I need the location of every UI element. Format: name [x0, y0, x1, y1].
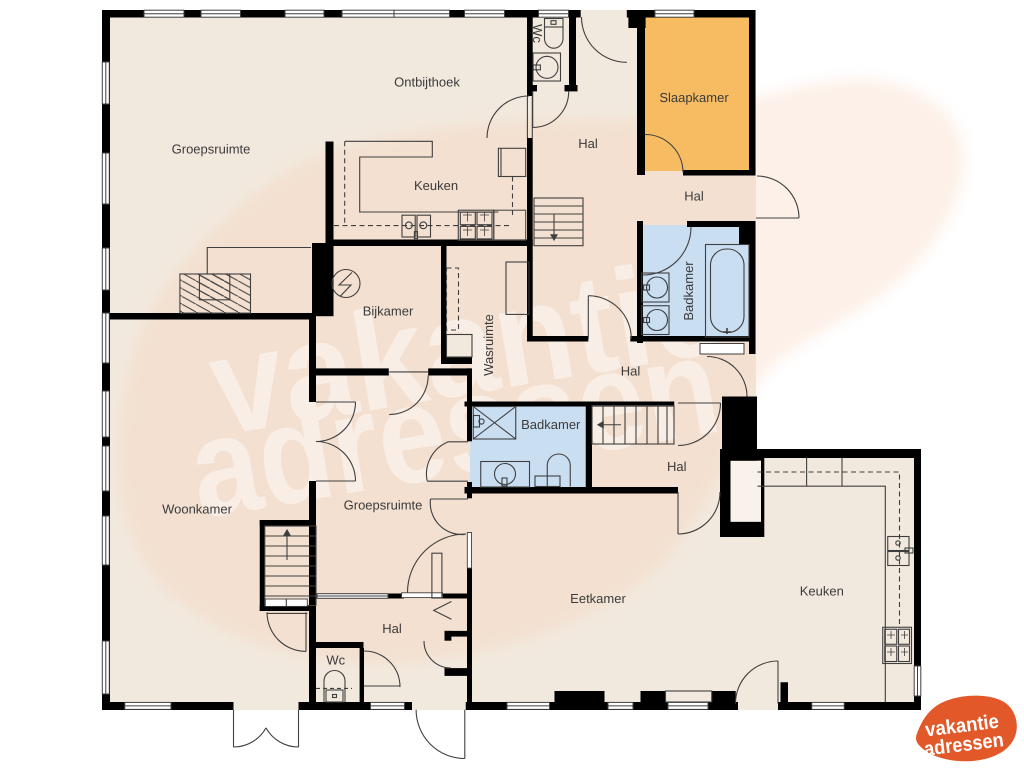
svg-text:Bijkamer: Bijkamer [363, 304, 414, 319]
svg-text:Hal: Hal [382, 621, 402, 636]
svg-text:Keuken: Keuken [800, 584, 844, 599]
svg-text:Woonkamer: Woonkamer [162, 502, 233, 517]
svg-text:Hal: Hal [667, 459, 687, 474]
svg-text:Badkamer: Badkamer [681, 261, 696, 321]
svg-text:Ontbijthoek: Ontbijthoek [394, 75, 460, 90]
svg-text:Hal: Hal [684, 189, 704, 204]
svg-text:Keuken: Keuken [414, 178, 458, 193]
svg-text:Eetkamer: Eetkamer [570, 591, 626, 606]
svg-text:Badkamer: Badkamer [521, 417, 581, 432]
svg-text:Wc: Wc [326, 653, 345, 668]
svg-text:Slaapkamer: Slaapkamer [659, 90, 729, 105]
svg-text:Groepsruimte: Groepsruimte [172, 141, 251, 156]
svg-text:Wasruimte: Wasruimte [481, 314, 496, 376]
svg-text:Hal: Hal [621, 364, 641, 379]
svg-text:Groepsruimte: Groepsruimte [344, 498, 423, 513]
svg-text:Wc: Wc [530, 24, 545, 43]
svg-text:Hal: Hal [578, 136, 598, 151]
